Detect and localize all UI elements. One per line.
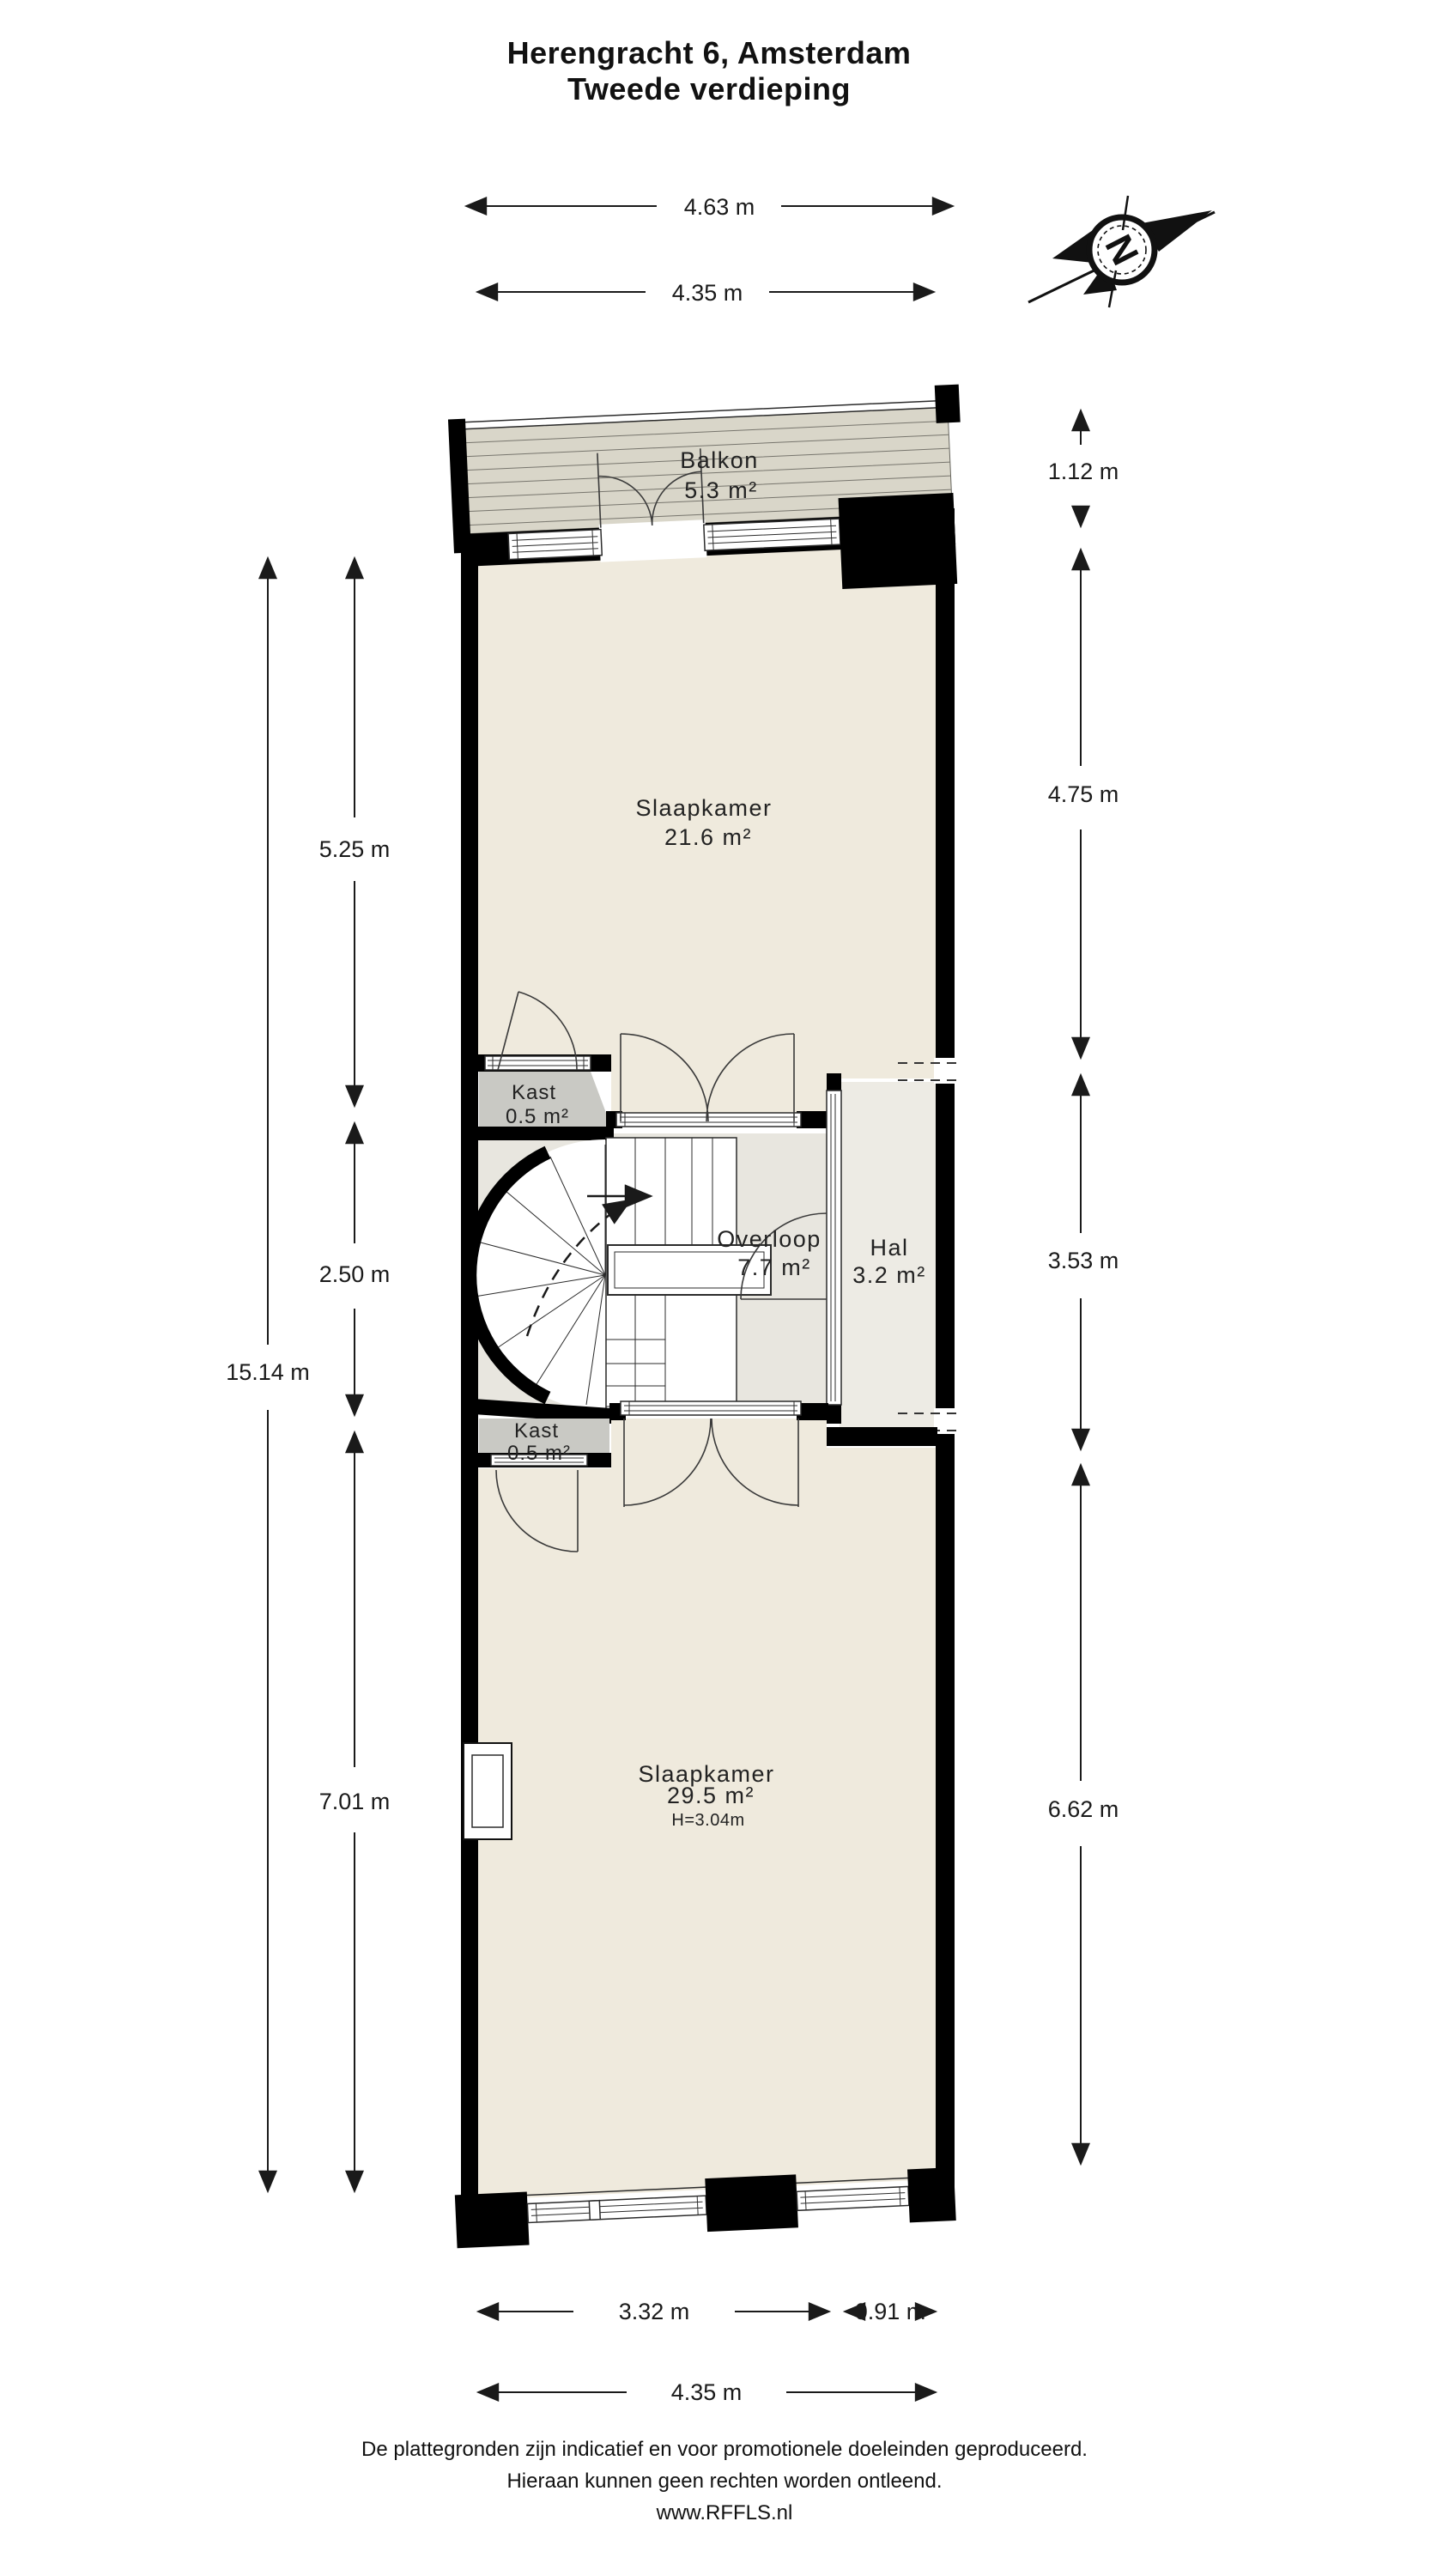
dimension-bottom-inner: 4.35 m	[478, 2379, 936, 2405]
floorplan-canvas: Herengracht 6, Amsterdam Tweede verdiepi…	[0, 0, 1449, 2576]
dimension-bottom-pier: 0.91 m	[845, 2299, 936, 2324]
balcony-window-left	[508, 530, 602, 560]
wall-bottom-right-block	[907, 2167, 956, 2222]
dimension-label: 3.53 m	[1048, 1248, 1119, 1273]
balcony-door-opening	[599, 519, 707, 562]
dimension-label: 5.25 m	[319, 836, 391, 862]
bottom-window-left	[527, 2196, 706, 2222]
room-area: 0.5 m²	[507, 1442, 571, 1465]
dimension-label: 4.63 m	[684, 194, 755, 220]
room-area: 29.5 m²	[667, 1783, 755, 1808]
dimension-label: 4.35 m	[672, 280, 743, 306]
dimension-label: 3.32 m	[619, 2299, 690, 2324]
balcony-window-right	[704, 519, 840, 550]
dimension-label: 15.14 m	[226, 1359, 310, 1385]
hal-partition-window	[827, 1073, 841, 1424]
room-ceiling-height: H=3.04m	[671, 1811, 744, 1830]
wall-bottom-left-block	[455, 2192, 530, 2249]
north-compass-icon: N	[1028, 196, 1215, 307]
room-area: 5.3 m²	[684, 477, 758, 503]
dimension-right-balkon: 1.12 m	[1048, 410, 1119, 526]
room-label: Hal	[870, 1235, 908, 1261]
slaapkamer1-door-sill	[606, 1111, 828, 1128]
footer-line1: De plattegronden zijn indicatief en voor…	[361, 2438, 1088, 2461]
page-title-line1: Herengracht 6, Amsterdam	[507, 35, 912, 70]
page-title-line2: Tweede verdieping	[567, 71, 851, 106]
dimension-label: 2.50 m	[319, 1261, 391, 1287]
room-area: 0.5 m²	[506, 1105, 569, 1128]
dimension-label: 7.01 m	[319, 1789, 391, 1814]
dimension-left-slaapkamer2: 7.01 m	[319, 1432, 391, 2191]
dimension-label: 6.62 m	[1048, 1796, 1119, 1822]
dimension-right-slaapkamer1: 4.75 m	[1048, 550, 1119, 1058]
dimension-right-slaapkamer2: 6.62 m	[1048, 1465, 1119, 2164]
room-area: 7.7 m²	[737, 1255, 811, 1280]
dimension-left-total: 15.14 m	[226, 558, 310, 2191]
room-label: Kast	[514, 1419, 559, 1443]
wall-left	[461, 541, 478, 2202]
room-label: Kast	[512, 1081, 556, 1104]
dimension-left-slaapkamer1: 5.25 m	[319, 558, 391, 1106]
wall-niche	[464, 1743, 512, 1839]
dimension-label: 4.75 m	[1048, 781, 1119, 807]
room-label: Balkon	[680, 447, 759, 473]
footer-line2: Hieraan kunnen geen rechten worden ontle…	[506, 2470, 942, 2493]
room-label: Overloop	[717, 1226, 822, 1252]
dimension-left-overloop: 2.50 m	[319, 1123, 391, 1415]
room-slaapkamer-2	[477, 1419, 936, 2200]
slaapkamer2-door-sill	[621, 1401, 801, 1415]
dimension-bottom-window: 3.32 m	[478, 2299, 829, 2324]
dimension-label: 1.12 m	[1048, 459, 1119, 484]
dimension-top-inner: 4.35 m	[477, 280, 934, 306]
dimension-label: 0.91 m	[855, 2299, 926, 2324]
wall-hal-bottom	[827, 1427, 937, 1446]
room-area: 21.6 m²	[664, 824, 752, 850]
bottom-window-right	[797, 2186, 909, 2210]
room-label: Slaapkamer	[635, 795, 772, 821]
dimension-top-outer: 4.63 m	[466, 194, 953, 220]
footer-website: www.RFFLS.nl	[656, 2501, 793, 2524]
dimension-right-hal: 3.53 m	[1048, 1075, 1119, 1449]
wall-right	[936, 508, 955, 2202]
room-area: 3.2 m²	[852, 1262, 926, 1288]
wall-kast1-bottom	[461, 1127, 614, 1140]
dimension-label: 4.35 m	[671, 2379, 743, 2405]
balcony-right-post	[935, 385, 961, 423]
wall-bottom-center-pier	[705, 2174, 798, 2232]
